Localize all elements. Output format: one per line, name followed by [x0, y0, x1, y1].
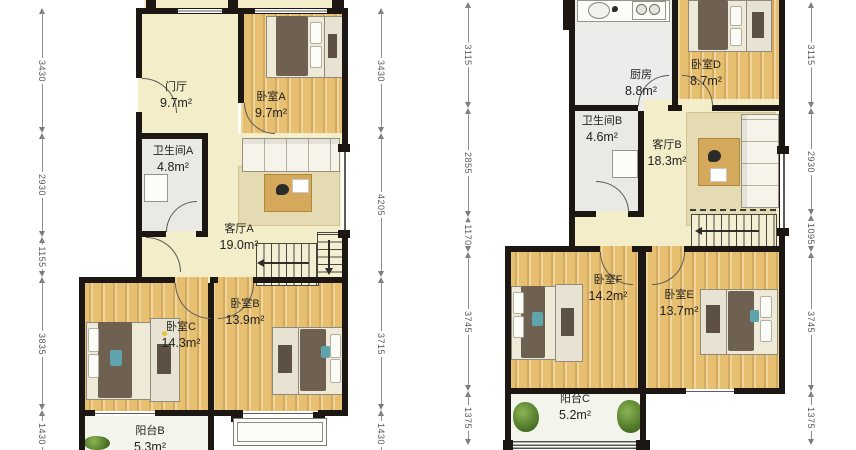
- room-name: 卫生间B: [582, 114, 622, 129]
- dim-value: 3115: [463, 42, 473, 67]
- window: [255, 9, 327, 13]
- bed-accent: [321, 346, 330, 358]
- floor-hall: [138, 8, 238, 136]
- pillow: [310, 46, 322, 68]
- room-area: 4.6m²: [582, 129, 622, 145]
- dim-chain-right-plan-right: 31152930109537451375: [803, 0, 819, 450]
- dim-chain-left-plan-right: 3430420537151430: [373, 0, 389, 450]
- dimension-segment: 1155: [34, 237, 50, 277]
- dimension-segment: 3115: [803, 2, 819, 108]
- wall: [202, 139, 208, 237]
- room-area: 19.0m²: [220, 237, 259, 253]
- window-balcony-c: [509, 441, 642, 449]
- room-area: 13.7m²: [660, 303, 699, 319]
- pillow: [513, 316, 524, 338]
- dimension-segment: 4205: [373, 133, 389, 277]
- dim-value: 3745: [806, 308, 816, 334]
- sofa-living-b: [741, 114, 779, 208]
- room-label-bedroom-b: 卧室B 13.9m²: [226, 297, 265, 328]
- dim-value: 3715: [376, 330, 386, 356]
- wall: [238, 8, 244, 103]
- room-name: 卧室C: [162, 320, 201, 335]
- wall: [196, 231, 208, 237]
- stair-arrow-line: [263, 262, 309, 264]
- room-area: 5.3m²: [134, 439, 166, 450]
- stair-dashed-line: [690, 209, 776, 213]
- wall: [672, 0, 678, 111]
- wall: [228, 0, 238, 8]
- room-name: 门厅: [160, 80, 192, 95]
- floorplan-canvas: 门厅 9.7m² 卧室A 9.7m² 卫生间A 4.8m² 客厅A 19.0m²…: [0, 0, 856, 450]
- dim-value: 1170: [463, 222, 473, 247]
- balcony-post: [503, 440, 513, 450]
- window-cap: [777, 228, 789, 236]
- room-area: 4.8m²: [153, 159, 193, 175]
- plant-balcony-b: [84, 436, 110, 450]
- room-name: 卧室F: [589, 273, 628, 288]
- wardrobe-panel: [328, 34, 337, 58]
- room-label-living-b: 客厅B 18.3m²: [648, 138, 687, 169]
- stove-burner-icon: [636, 4, 647, 15]
- room-label-bedroom-a: 卧室A 9.7m²: [255, 90, 287, 121]
- pillow: [760, 320, 772, 342]
- room-label-kitchen: 厨房 8.8m²: [625, 68, 657, 99]
- dim-value: 2855: [463, 149, 473, 175]
- dimension-segment: 1375: [460, 391, 476, 445]
- stair-arrow-line: [328, 240, 330, 268]
- wall: [684, 246, 785, 252]
- window-bedroom-e: [686, 389, 734, 394]
- sofa-living-a: [242, 138, 340, 172]
- room-area: 13.9m²: [226, 312, 265, 328]
- wall: [505, 388, 686, 394]
- dim-value: 4205: [376, 192, 386, 218]
- dim-value: 3115: [806, 42, 816, 67]
- dim-value: 3835: [37, 330, 47, 356]
- dim-value: 1430: [37, 421, 47, 447]
- stove-burner-icon: [649, 4, 660, 15]
- stair-arrow-line: [701, 230, 759, 232]
- dimension-segment: 2930: [34, 133, 50, 237]
- room-label-bedroom-d: 卧室D 8.7m²: [690, 58, 722, 89]
- room-area: 5.2m²: [559, 407, 591, 423]
- dim-value: 2930: [37, 172, 47, 198]
- wardrobe-panel: [278, 345, 292, 373]
- pillow: [730, 6, 742, 26]
- floor-top-sliver-left: [144, 0, 344, 8]
- room-label-bedroom-f: 卧室F 14.2m²: [589, 273, 628, 304]
- wall: [79, 277, 175, 283]
- pillow: [310, 22, 322, 44]
- wall: [332, 0, 344, 8]
- dim-value: 3430: [37, 57, 47, 83]
- wall: [668, 105, 682, 111]
- dimension-segment: 1430: [373, 410, 389, 450]
- dimension-segment: 1170: [460, 217, 476, 252]
- pillow: [513, 292, 524, 314]
- room-label-balcony-c: 阳台C 5.2m²: [559, 392, 591, 423]
- pillow: [760, 296, 772, 318]
- wardrobe-panel: [752, 12, 764, 38]
- room-area: 14.2m²: [589, 288, 628, 304]
- wall: [628, 211, 644, 217]
- room-area: 9.7m²: [255, 105, 287, 121]
- wall: [505, 252, 511, 450]
- dimension-segment: 3430: [373, 8, 389, 133]
- kettle-icon: [276, 184, 289, 195]
- wall: [146, 0, 156, 8]
- wall: [136, 8, 142, 78]
- dimension-segment: 2855: [460, 108, 476, 217]
- dimension-segment: 3835: [34, 277, 50, 410]
- room-label-living-a: 客厅A 19.0m²: [220, 222, 259, 253]
- kettle-icon: [708, 150, 721, 162]
- room-area: 14.3m²: [162, 335, 201, 351]
- window-living-a: [341, 152, 349, 230]
- bed-accent: [532, 312, 543, 326]
- dim-value: 1095: [806, 220, 816, 246]
- wall: [79, 283, 85, 450]
- wall: [155, 410, 213, 416]
- dim-value: 1155: [37, 244, 47, 269]
- wall: [638, 111, 644, 217]
- room-label-bedroom-c: 卧室C 14.3m²: [162, 320, 201, 351]
- tray-icon: [710, 168, 727, 182]
- dimension-segment: 3745: [803, 252, 819, 391]
- pillow: [88, 328, 99, 352]
- room-name: 卫生间A: [153, 144, 193, 159]
- window-cap: [338, 230, 350, 238]
- room-name: 卧室B: [226, 297, 265, 312]
- room-label-bathroom-a: 卫生间A 4.8m²: [153, 144, 193, 175]
- bathroom-b-fixture: [612, 150, 638, 178]
- dim-chain-left-plan-left: 34302930115538351430: [34, 0, 50, 450]
- wall: [253, 277, 348, 283]
- bay-window: [233, 418, 327, 446]
- stair-arrow-left-icon: [257, 259, 264, 267]
- room-area: 18.3m²: [648, 153, 687, 169]
- room-area: 9.7m²: [160, 95, 192, 111]
- stair-arrow-left-icon: [695, 227, 702, 235]
- dimension-segment: 1375: [803, 391, 819, 445]
- wall: [505, 246, 600, 252]
- window-bedroom-b: [243, 411, 318, 416]
- dim-value: 3745: [463, 308, 473, 334]
- window-bedroom-c: [95, 411, 155, 416]
- stair-arrow-down-icon: [325, 268, 333, 275]
- wall: [569, 211, 596, 217]
- wall: [136, 133, 208, 139]
- wardrobe-panel: [706, 305, 720, 333]
- room-area: 8.7m²: [690, 73, 722, 89]
- dim-value: 1375: [463, 405, 473, 431]
- dimension-segment: 3745: [460, 252, 476, 391]
- dimension-segment: 3115: [460, 2, 476, 108]
- dim-chain-right-plan-left: 31152855117037451375: [460, 0, 476, 450]
- window: [178, 9, 222, 13]
- balcony-post: [636, 440, 650, 450]
- dim-value: 2930: [806, 148, 816, 174]
- wall: [569, 105, 638, 111]
- room-name: 卧室D: [690, 58, 722, 73]
- dimension-segment: 3715: [373, 277, 389, 410]
- bed-accent: [110, 350, 122, 366]
- room-name: 卧室E: [660, 288, 699, 303]
- bathroom-a-fixture: [144, 174, 168, 202]
- dimension-segment: 1430: [34, 410, 50, 450]
- room-name: 阳台C: [559, 392, 591, 407]
- dim-value: 1375: [806, 405, 816, 431]
- pillow: [330, 359, 341, 383]
- wall: [136, 231, 166, 237]
- wardrobe-panel: [561, 308, 574, 336]
- room-area: 8.8m²: [625, 83, 657, 99]
- room-name: 阳台B: [134, 424, 166, 439]
- dimension-segment: 2930: [803, 108, 819, 215]
- room-name: 厨房: [625, 68, 657, 83]
- dimension-segment: 3430: [34, 8, 50, 133]
- room-name: 卧室A: [255, 90, 287, 105]
- duvet-bedroom-a: [276, 16, 308, 76]
- pillow: [330, 334, 341, 358]
- window-cap: [338, 144, 350, 152]
- dim-arrow-down-icon: [808, 439, 814, 445]
- window-cap: [777, 146, 789, 154]
- wall: [638, 252, 646, 394]
- dimension-segment: 1095: [803, 215, 819, 252]
- tray-icon: [292, 179, 309, 193]
- dim-arrow-down-icon: [465, 439, 471, 445]
- wall: [712, 105, 785, 111]
- duvet-bedroom-d: [698, 0, 728, 50]
- kitchen-sink-icon: [588, 2, 610, 19]
- duvet-bedroom-b: [300, 329, 326, 391]
- pillow: [88, 354, 99, 378]
- plant-balcony-c: [513, 402, 539, 432]
- room-name: 客厅B: [648, 138, 687, 153]
- bed-accent: [750, 310, 759, 322]
- room-name: 客厅A: [220, 222, 259, 237]
- wall: [734, 388, 785, 394]
- faucet-icon: [612, 6, 618, 12]
- window-living-b: [780, 154, 788, 228]
- pillow: [730, 28, 742, 46]
- dim-value: 3430: [376, 57, 386, 83]
- room-label-balcony-b: 阳台B 5.3m²: [134, 424, 166, 450]
- dim-value: 1430: [376, 421, 386, 447]
- room-label-bathroom-b: 卫生间B 4.6m²: [582, 114, 622, 145]
- room-label-bedroom-e: 卧室E 13.7m²: [660, 288, 699, 319]
- room-label-hall: 门厅 9.7m²: [160, 80, 192, 111]
- wall: [79, 410, 95, 416]
